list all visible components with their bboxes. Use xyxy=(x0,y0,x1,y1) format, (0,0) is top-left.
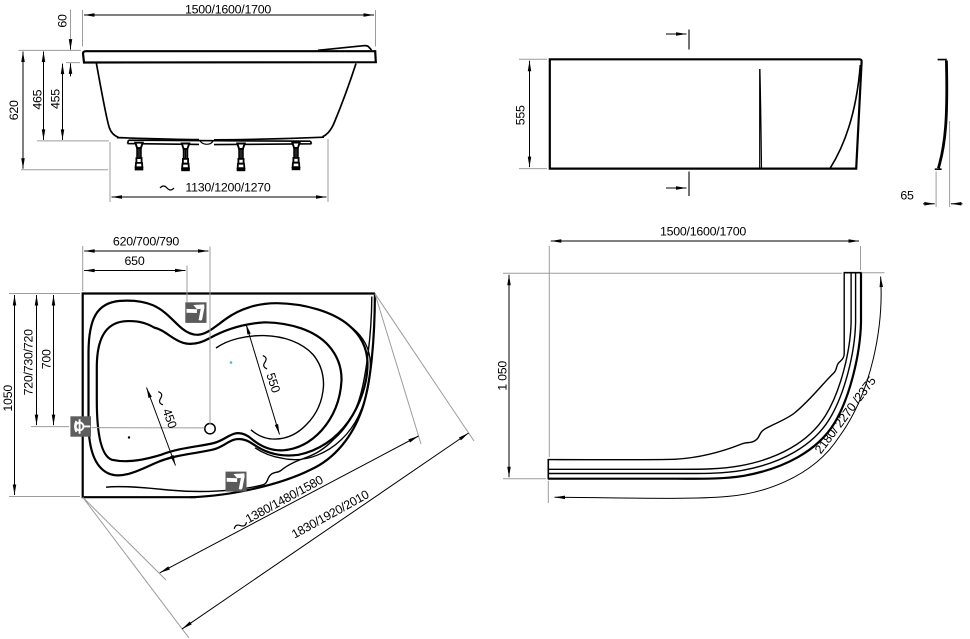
svg-text:555: 555 xyxy=(514,105,528,125)
svg-text:1 050: 1 050 xyxy=(496,361,510,391)
svg-text:720/730/720: 720/730/720 xyxy=(22,329,36,396)
svg-text:1050: 1050 xyxy=(1,385,15,412)
svg-text:620: 620 xyxy=(7,100,21,120)
svg-text:1500/1600/1700: 1500/1600/1700 xyxy=(185,3,271,17)
svg-text:650: 650 xyxy=(125,254,145,268)
svg-text:700: 700 xyxy=(40,349,54,369)
svg-text:1500/1600/1700: 1500/1600/1700 xyxy=(660,225,746,239)
svg-text:65: 65 xyxy=(900,189,914,203)
svg-text:620/700/790: 620/700/790 xyxy=(113,235,180,249)
svg-text:465: 465 xyxy=(30,89,44,109)
svg-text:1130/1200/1270: 1130/1200/1270 xyxy=(185,181,271,195)
svg-text:455: 455 xyxy=(49,89,63,109)
svg-text:60: 60 xyxy=(55,14,69,28)
